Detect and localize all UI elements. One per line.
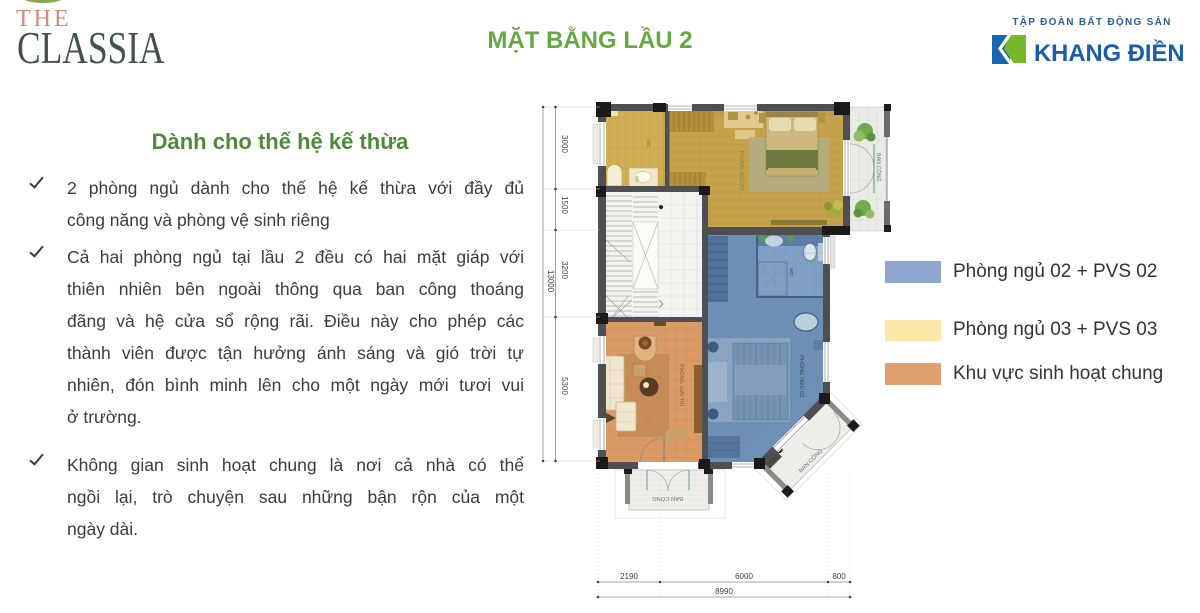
svg-text:8990: 8990 — [715, 587, 733, 596]
svg-text:BAN CÔNG: BAN CÔNG — [652, 495, 683, 502]
svg-text:1500: 1500 — [560, 196, 569, 214]
svg-text:WC: WC — [646, 140, 651, 148]
svg-text:PHÒNG NGỦ 02: PHÒNG NGỦ 02 — [798, 355, 805, 397]
svg-text:BAN CÔNG: BAN CÔNG — [875, 153, 882, 182]
svg-text:PHÒNG NGỦ 03: PHÒNG NGỦ 03 — [738, 151, 745, 190]
svg-text:6000: 6000 — [735, 572, 753, 581]
svg-text:800: 800 — [832, 572, 846, 581]
svg-text:WC: WC — [788, 268, 794, 277]
svg-text:13000: 13000 — [546, 270, 555, 293]
svg-text:3200: 3200 — [560, 261, 569, 279]
svg-text:5300: 5300 — [560, 377, 569, 395]
svg-text:3000: 3000 — [560, 135, 569, 153]
svg-text:2190: 2190 — [620, 572, 638, 581]
svg-text:WC: WC — [635, 176, 640, 183]
svg-text:PHÒNG GIẢI TRÍ: PHÒNG GIẢI TRÍ — [678, 364, 685, 407]
